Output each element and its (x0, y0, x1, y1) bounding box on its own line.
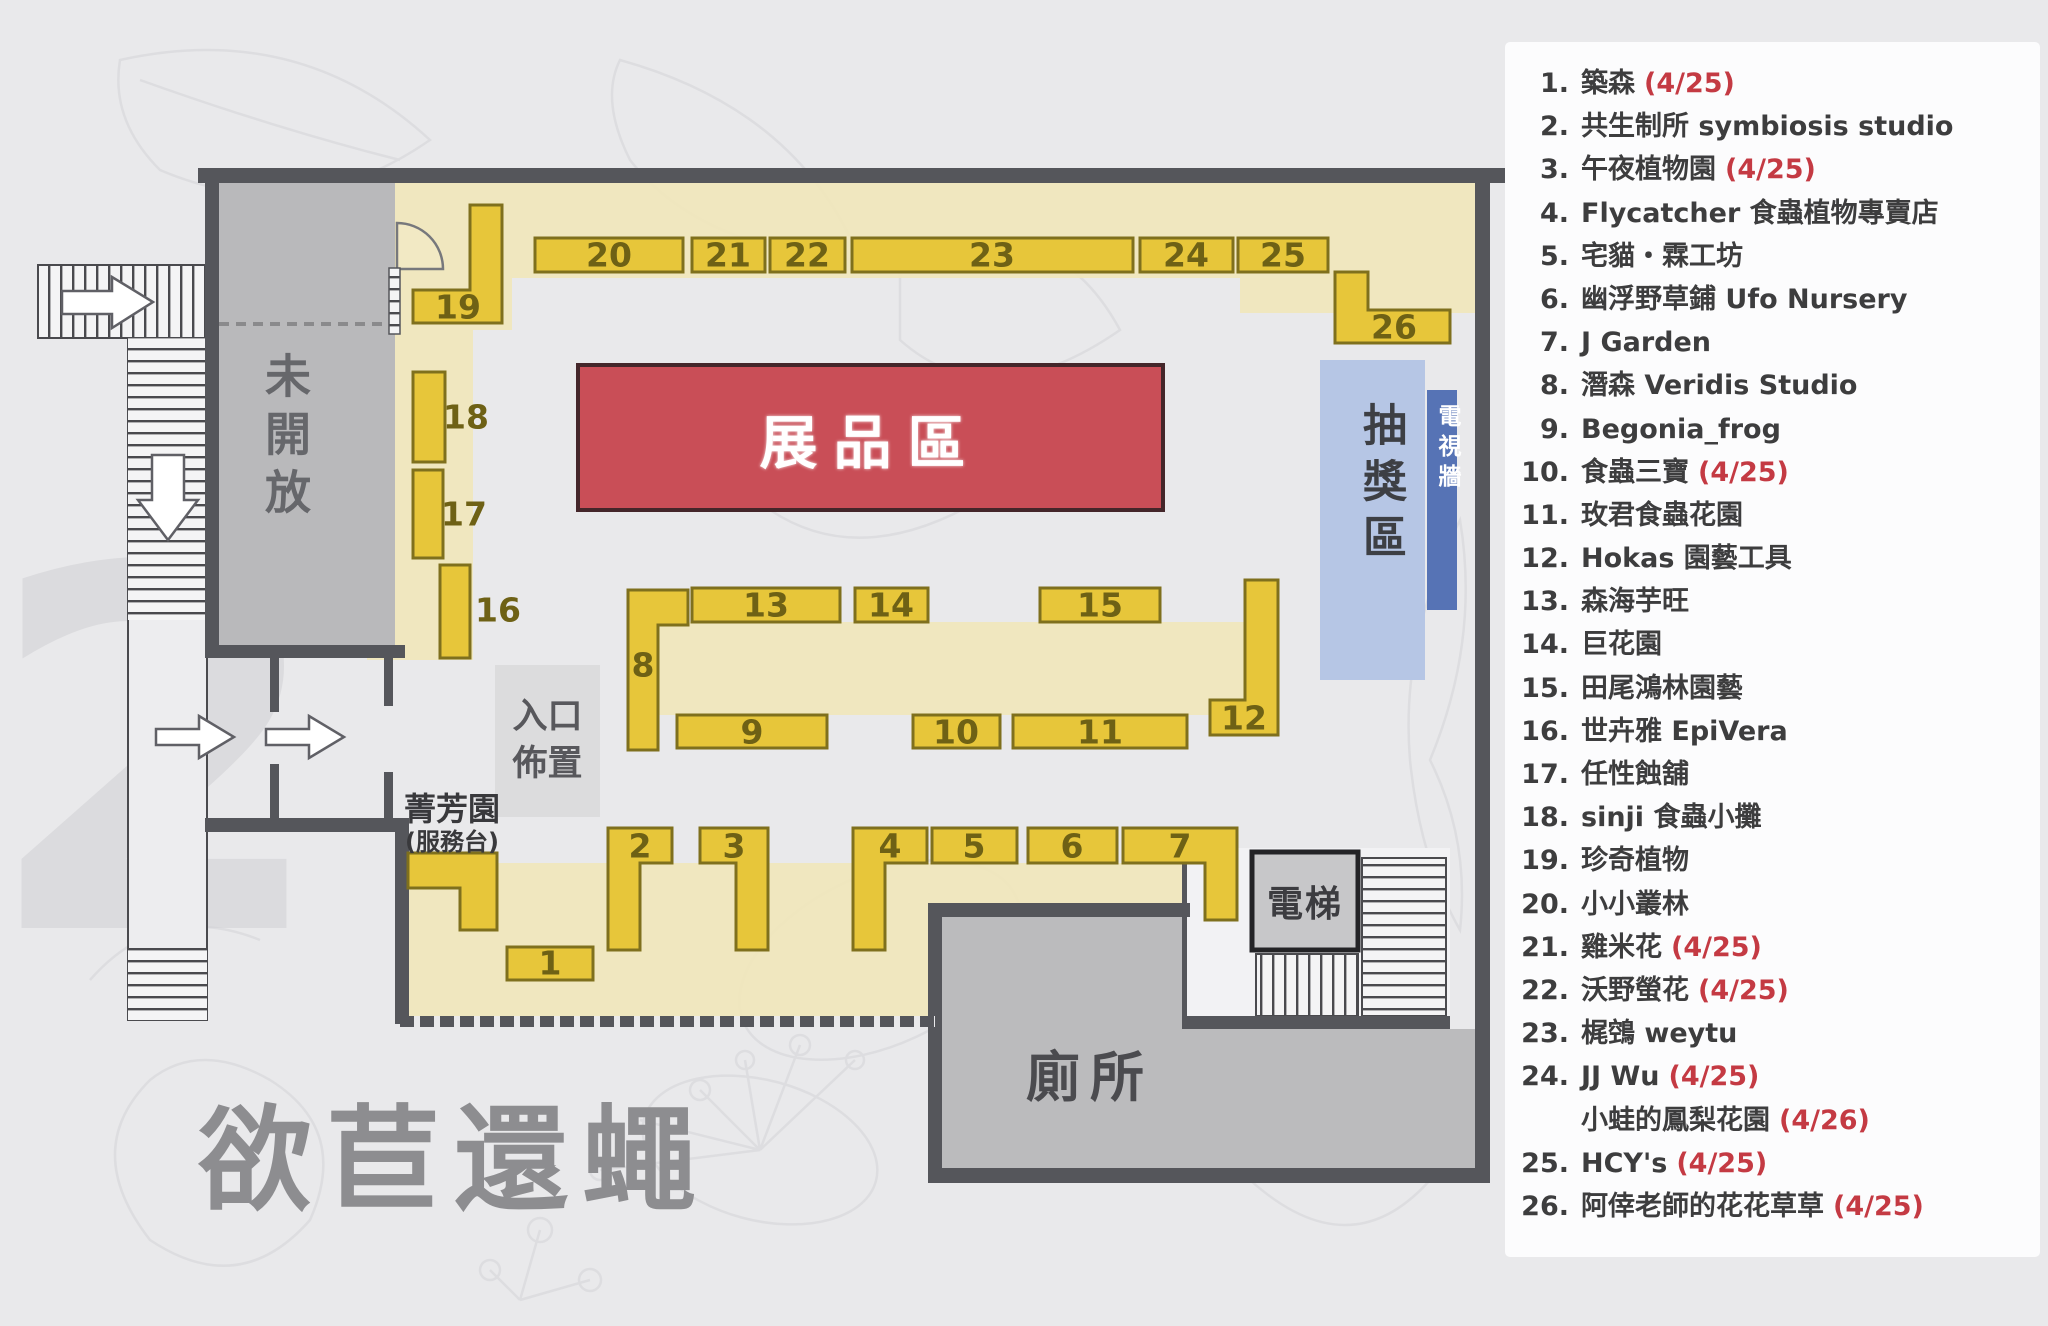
booth-11-label: 11 (1077, 713, 1123, 752)
booth-12-label: 12 (1221, 699, 1267, 738)
legend-item-date: (4/25) (1698, 451, 1789, 494)
legend-item: 12. Hokas 園藝工具 (1505, 537, 2040, 580)
legend-item-date: (4/25) (1669, 1055, 1760, 1098)
legend-item-number: 4. (1505, 192, 1569, 235)
booth-16-label: 16 (475, 591, 521, 630)
legend-item-name: JJ Wu (1581, 1055, 1660, 1098)
vendor-legend-panel: 1. 築森 (4/25) 2. 共生制所 symbiosis studio 3.… (1505, 42, 2040, 1257)
legend-item: 23. 梶鵼 weytu (1505, 1012, 2040, 1055)
legend-item-name: 阿倖老師的花花草草 (1581, 1185, 1824, 1228)
booth-16 (440, 565, 470, 658)
legend-item: 8. 潛森 Veridis Studio (1505, 364, 2040, 407)
booth-22-label: 22 (784, 236, 830, 275)
legend-item-name: 梶鵼 weytu (1581, 1012, 1737, 1055)
legend-item-name: 田尾鴻林園藝 (1581, 667, 1743, 710)
booth-26-label: 26 (1371, 308, 1417, 347)
legend-item-number: 2. (1505, 105, 1569, 148)
legend-item: 25. HCY's (4/25) (1505, 1142, 2040, 1185)
legend-item-name: 食蟲三寶 (1581, 451, 1689, 494)
legend-item-name: 小蛙的鳳梨花園 (1581, 1099, 1770, 1142)
booth-23-label: 23 (969, 236, 1015, 275)
legend-item: 19. 珍奇植物 (1505, 839, 2040, 882)
legend-item: 1. 築森 (4/25) (1505, 62, 2040, 105)
legend-item-date: (4/25) (1725, 148, 1816, 191)
legend-item: 24. JJ Wu (4/25) (1505, 1055, 2040, 1098)
legend-item-number: 21. (1505, 926, 1569, 969)
booth-2-label: 2 (629, 827, 652, 866)
legend-item-name: Begonia_frog (1581, 408, 1781, 451)
legend-item-number: 22. (1505, 969, 1569, 1012)
booth-13-label: 13 (743, 586, 789, 625)
legend-item-number: 16. (1505, 710, 1569, 753)
legend-item-number: 10. (1505, 451, 1569, 494)
service-desk-subtitle: (服務台) (392, 828, 512, 857)
booth-15-label: 15 (1077, 586, 1123, 625)
booth-6-label: 6 (1061, 827, 1084, 866)
legend-item: 20. 小小叢林 (1505, 883, 2040, 926)
booth-19-label: 19 (435, 288, 481, 327)
legend-item-number: 13. (1505, 580, 1569, 623)
booth-25-label: 25 (1260, 236, 1306, 275)
legend-item-number: 6. (1505, 278, 1569, 321)
event-title: 欲苣還蠅 (198, 1068, 710, 1233)
legend-item-name: sinji 食蟲小攤 (1581, 796, 1761, 839)
door-pocket (389, 268, 400, 334)
legend-item-date: (4/25) (1676, 1142, 1767, 1185)
legend-item: 11. 玫君食蟲花園 (1505, 494, 2040, 537)
legend-item-name: 世卉雅 EpiVera (1581, 710, 1788, 753)
tv-wall-label: 電視牆 (1430, 404, 1464, 494)
legend-item-number: 1. (1505, 62, 1569, 105)
booth-3-label: 3 (723, 827, 746, 866)
legend-item-number: 12. (1505, 537, 1569, 580)
legend-item-number: 8. (1505, 364, 1569, 407)
legend-item: 18. sinji 食蟲小攤 (1505, 796, 2040, 839)
entrance-decor-line1: 入口 (512, 694, 582, 741)
legend-item: 3. 午夜植物園 (4/25) (1505, 148, 2040, 191)
booth-8-label: 8 (632, 646, 655, 685)
legend-item-number: 20. (1505, 883, 1569, 926)
booth-10-label: 10 (933, 713, 979, 752)
legend-item: 26. 阿倖老師的花花草草 (4/25) (1505, 1185, 2040, 1228)
legend-item: 21. 雞米花 (4/25) (1505, 926, 2040, 969)
legend-item-number: 17. (1505, 753, 1569, 796)
legend-item-name: 築森 (1581, 62, 1635, 105)
service-desk-label: 菁芳園 (服務台) (392, 790, 512, 857)
legend-item-number: 18. (1505, 796, 1569, 839)
exterior-stairs-lower-flight (128, 948, 207, 1020)
legend-item-name: 沃野螢花 (1581, 969, 1689, 1012)
booth-5-label: 5 (963, 827, 986, 866)
legend-item-number: 25. (1505, 1142, 1569, 1185)
arrow-right-vestibule-2 (266, 716, 344, 758)
legend-item-number: 5. (1505, 235, 1569, 278)
stairs-inner-lower (1256, 954, 1358, 1016)
legend-item-name: 玫君食蟲花園 (1581, 494, 1743, 537)
legend-item: 15. 田尾鴻林園藝 (1505, 667, 2040, 710)
booth-4-label: 4 (879, 827, 902, 866)
legend-item-number: 7. (1505, 321, 1569, 364)
legend-item: 13. 森海芋旺 (1505, 580, 2040, 623)
legend-item: 17. 任性蝕舖 (1505, 753, 2040, 796)
legend-item-number: 9. (1505, 408, 1569, 451)
booth-17 (413, 470, 443, 558)
booth-14-label: 14 (868, 586, 914, 625)
booth-20-label: 20 (586, 236, 632, 275)
legend-item: 16. 世卉雅 EpiVera (1505, 710, 2040, 753)
legend-item-name: 幽浮野草鋪 Ufo Nursery (1581, 278, 1907, 321)
legend-item-date: (4/25) (1833, 1185, 1924, 1228)
legend-item-number: 14. (1505, 623, 1569, 666)
stairs-inner-right (1362, 858, 1446, 1016)
closed-area-label: 未開放 (252, 352, 318, 526)
legend-item: 14. 巨花園 (1505, 623, 2040, 666)
legend-item-number: 24. (1505, 1055, 1569, 1098)
bottom-wall-serrated (400, 1016, 935, 1027)
legend-item-number: 3. (1505, 148, 1569, 191)
booth-7-label: 7 (1169, 827, 1192, 866)
legend-item: 7. J Garden (1505, 321, 2040, 364)
booth-18-label: 18 (443, 398, 489, 437)
legend-item-name: HCY's (1581, 1142, 1667, 1185)
legend-item: 2. 共生制所 symbiosis studio (1505, 105, 2040, 148)
legend-item-name: 小小叢林 (1581, 883, 1689, 926)
legend-item-number: 15. (1505, 667, 1569, 710)
legend-item-date: (4/25) (1671, 926, 1762, 969)
legend-item: 5. 宅貓・霖工坊 (1505, 235, 2040, 278)
legend-item: 6. 幽浮野草鋪 Ufo Nursery (1505, 278, 2040, 321)
booth-1-label: 1 (539, 944, 562, 983)
legend-item-date: (4/25) (1644, 62, 1735, 105)
legend-item-name: 任性蝕舖 (1581, 753, 1689, 796)
legend-item-number: 19. (1505, 839, 1569, 882)
booth-24-label: 24 (1163, 236, 1209, 275)
legend-item-name: J Garden (1581, 321, 1711, 364)
raffle-area-label: 抽獎區 (1348, 402, 1412, 570)
booth-9-label: 9 (741, 713, 764, 752)
legend-item: 10. 食蟲三寶 (4/25) (1505, 451, 2040, 494)
entrance-decor-line2: 佈置 (512, 741, 582, 788)
legend-item-name: 午夜植物園 (1581, 148, 1716, 191)
legend-item-name: 珍奇植物 (1581, 839, 1689, 882)
legend-item: 9. Begonia_frog (1505, 408, 2040, 451)
legend-item-number: 26. (1505, 1185, 1569, 1228)
floor-plan-poster: { "title": "欲苣還蠅", "watermark": "2", "ma… (0, 0, 2048, 1326)
legend-item: 22. 沃野螢花 (4/25) (1505, 969, 2040, 1012)
legend-item-name: 潛森 Veridis Studio (1581, 364, 1857, 407)
booth-17-label: 17 (441, 495, 487, 534)
booth-21-label: 21 (705, 236, 751, 275)
legend-item-date: (4/26) (1779, 1099, 1870, 1142)
legend-item-number: 23. (1505, 1012, 1569, 1055)
exhibit-area-label: 展品區 (578, 365, 1163, 510)
legend-item-name: Hokas 園藝工具 (1581, 537, 1792, 580)
service-desk-name: 菁芳園 (392, 790, 512, 828)
legend-item-name: 共生制所 symbiosis studio (1581, 105, 1953, 148)
elevator-label: 電梯 (1252, 852, 1358, 950)
toilet-label: 廁所 (1000, 1033, 1180, 1112)
booth-18 (413, 372, 445, 462)
legend-item-name: 巨花園 (1581, 623, 1662, 666)
legend-item: 4. Flycatcher 食蟲植物專賣店 (1505, 192, 2040, 235)
legend-item-date: (4/25) (1698, 969, 1789, 1012)
legend-item: 小蛙的鳳梨花園 (4/26) (1505, 1099, 2040, 1142)
legend-item-name: 宅貓・霖工坊 (1581, 235, 1743, 278)
legend-item-name: 雞米花 (1581, 926, 1662, 969)
legend-item-name: Flycatcher 食蟲植物專賣店 (1581, 192, 1939, 235)
legend-item-name: 森海芋旺 (1581, 580, 1689, 623)
legend-item-number: 11. (1505, 494, 1569, 537)
